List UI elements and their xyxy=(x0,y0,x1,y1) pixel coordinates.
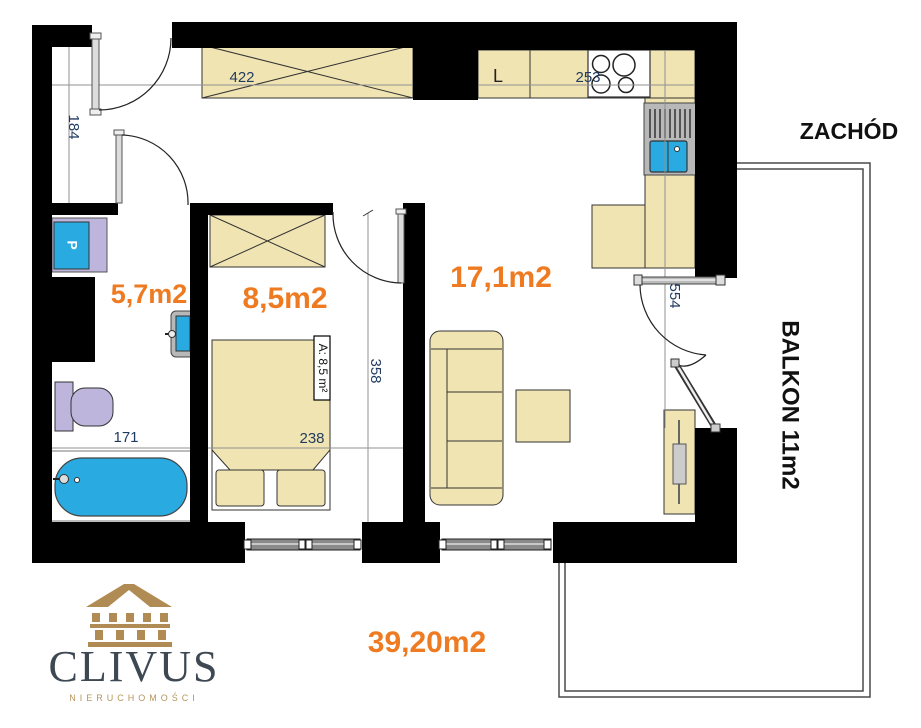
bathtub xyxy=(46,451,195,521)
coffee-table xyxy=(516,390,570,442)
compass-label: ZACHÓD xyxy=(800,117,898,144)
dim-bed: 238 xyxy=(299,430,324,447)
living-area-label: 17,1m2 xyxy=(450,261,552,294)
clivus-logo: CLIVUS NIERUCHOMOŚCI xyxy=(49,584,220,703)
floor-plan: 422 253 184 358 554 171 238 A: 8,5 m² L … xyxy=(0,0,921,728)
bedroom-window xyxy=(244,526,362,560)
entrance-door xyxy=(90,33,171,115)
bedroom-area-label: 8,5m2 xyxy=(242,282,327,315)
dim-hall: 184 xyxy=(65,114,82,139)
logo-brand: CLIVUS xyxy=(49,642,220,691)
bathroom-area-label: 5,7m2 xyxy=(111,279,188,309)
balcony-label: BALKON 11m2 xyxy=(777,320,804,489)
toilet xyxy=(55,382,113,431)
dim-living-depth: 554 xyxy=(666,283,683,308)
dim-wardrobe: 422 xyxy=(229,69,254,86)
bed-area-tag-text: A: 8,5 m² xyxy=(316,344,330,393)
dim-room-depth: 358 xyxy=(367,358,384,383)
washer-label: P xyxy=(64,240,80,249)
living-room-window xyxy=(439,526,553,560)
bedroom-wardrobe xyxy=(210,215,325,267)
dim-bathroom: 171 xyxy=(113,429,138,446)
radiator xyxy=(664,410,695,514)
floorplan-svg: 422 253 184 358 554 171 238 A: 8,5 m² L … xyxy=(0,0,921,728)
logo-building-icon xyxy=(86,584,172,647)
dim-kitchen: 253 xyxy=(575,69,600,86)
dimension-labels: 422 253 184 358 554 171 238 xyxy=(65,69,683,447)
sofa xyxy=(430,331,503,505)
bedroom-door xyxy=(333,209,406,283)
logo-tagline: NIERUCHOMOŚCI xyxy=(69,692,199,703)
bed-area-tag: A: 8,5 m² xyxy=(314,336,330,400)
fridge-label: L xyxy=(493,66,503,86)
bed xyxy=(212,340,330,510)
total-area-label: 39,20m2 xyxy=(368,626,486,659)
kitchen-sink xyxy=(644,103,697,175)
bathroom-door xyxy=(114,130,188,205)
